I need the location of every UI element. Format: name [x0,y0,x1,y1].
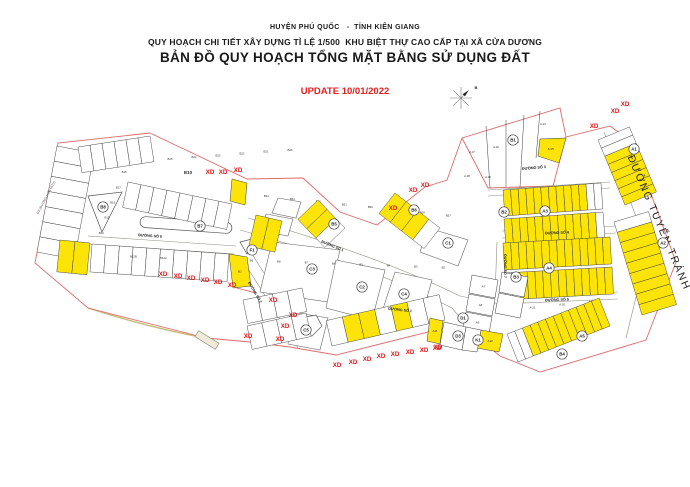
xd-marker: XD [219,169,228,176]
xd-marker: XD [187,275,196,282]
block-circle-label: K1 [475,338,481,343]
road-label: ĐƯỜNG SỐ 6 [138,232,162,239]
xd-marker: XD [244,333,253,340]
lot-label: B23 [215,153,220,157]
lot [131,247,147,276]
lot-label: B22 [239,151,244,155]
lot-label: B9 [250,258,254,262]
lot [230,179,247,205]
lot [213,253,229,282]
xd-marker: XD [406,349,415,356]
xd-marker: XD [228,282,237,289]
lot-label: B18 [122,170,127,174]
lot-label: A.20 [559,302,565,306]
block-circle-label: B3 [513,275,519,280]
xd-marker: XD [611,108,620,115]
lot-label: B12B [130,255,137,259]
xd-marker: XD [421,182,430,189]
lot-label: B30 [368,205,373,209]
lot-label: A10 [487,339,493,343]
lot [104,245,120,274]
xd-marker: XD [214,279,223,286]
lot [90,244,106,273]
xd-marker: XD [289,312,298,319]
xd-marker: XD [201,277,210,284]
xd-marker: XD [621,101,630,108]
page: HUYỆN PHÚ QUỐC - TỈNH KIÊN GIANG QUY HOẠ… [0,0,690,487]
lot-label: B12A [160,256,167,260]
xd-marker: XD [420,347,429,354]
lot-label: B15 [104,216,109,220]
lot [72,242,90,275]
xd-marker: XD [391,351,400,358]
road-label: ĐƯỜNG SỐ 5 [545,297,569,303]
lot-label: A.21 [530,305,536,309]
lot-label: B17 [116,185,121,189]
lot-label: A.08 [464,174,470,178]
xd-marker: XD [433,345,442,352]
red-boundary [566,126,610,137]
lot-label: A.05 [548,147,555,151]
lot-label: B34 [264,194,269,198]
lot-label: B21 [263,150,268,154]
lot-label: A.07 [469,150,475,154]
block-circle-label: F1 [249,248,255,253]
xd-marker: XD [281,323,290,330]
block-circle-label: C3 [309,267,315,272]
lot-label: A9 [476,321,480,325]
block-circle-label: C4 [401,292,407,297]
block-circle-label: A1 [631,147,637,152]
lot [604,267,613,294]
lot-divider [520,115,524,187]
block-circle-label: B1 [510,138,516,143]
xd-marker: XD [389,205,398,212]
lot-label: B24 [191,155,196,159]
lot-label: A.06 [485,175,491,179]
map-text-label: B10 [184,170,193,175]
lot-label: A.04 [540,122,546,126]
block-circle-label: D1 [460,316,466,321]
lot-label: B1 [238,269,242,273]
xd-marker: XD [409,187,418,194]
xd-marker: XD [333,362,342,369]
road-label: ĐƯỜNG SỐ 4 [545,230,570,236]
lot-label: A8 [479,303,483,307]
block [272,198,301,218]
lot-label: B14 [99,231,104,235]
block-circle-label: B8 [100,205,106,210]
road-edge [88,236,236,246]
lot-label: B20 [287,148,292,152]
road-label: ĐƯỜNG SỐ 7 [503,254,508,278]
block-circle-label: B6 [411,208,417,213]
xd-marker: XD [206,169,215,176]
xd-marker: XD [159,271,168,278]
block-circle-label: B4 [559,352,565,357]
lot-label: B33 [290,197,295,201]
block-circle-label: C2 [359,285,365,290]
xd-marker: XD [234,167,243,174]
xd-marker: XD [377,353,386,360]
lot-label: B5 [359,262,363,266]
lot-label: B8 [277,259,281,263]
block-circle-label: A5 [579,334,585,339]
lot-label: B2 [442,265,446,269]
lot [593,183,602,209]
block-circle-label: D3 [455,334,461,339]
block-circle-label: A3 [542,209,548,214]
block-circle-label: B2 [501,210,507,215]
block-circle-label: A2 [660,241,666,246]
lot-label: B6 [332,261,336,265]
compass-north-label: B [475,85,478,90]
block-circle-label: B7 [197,224,203,229]
xd-marker: XD [363,356,372,363]
block-circle-label: C1 [445,241,451,246]
lot-label: B4 [387,263,391,267]
lot-label: B7 [305,260,309,264]
road-label: ĐƯỜNG SỐ 3 [522,164,546,171]
xd-marker: XD [174,273,183,280]
block-circle-label: B5 [331,222,337,227]
lot [595,212,604,238]
planning-map: B19B18B17B16B15B14B13B25B24B23B22B21B20B… [0,0,690,487]
xd-marker: XD [269,297,278,304]
xd-marker: XD [276,336,285,343]
lot-label: A.02 [493,145,499,149]
pier [195,331,219,350]
lot-label: B3 [414,264,418,268]
xd-marker: XD [349,359,358,366]
xd-marker: XD [590,123,599,130]
block-circle-label: C5 [303,328,309,333]
lot-label: B25 [167,157,172,161]
lot-label: B31 [342,202,347,206]
lot-label: B16 [110,201,115,205]
lot [602,237,611,264]
lot [117,246,133,275]
block-circle-label: A4 [546,266,552,271]
lot-label: A7 [482,285,486,289]
lot-label: B27 [446,213,451,217]
lot-label: A11 [432,329,437,333]
